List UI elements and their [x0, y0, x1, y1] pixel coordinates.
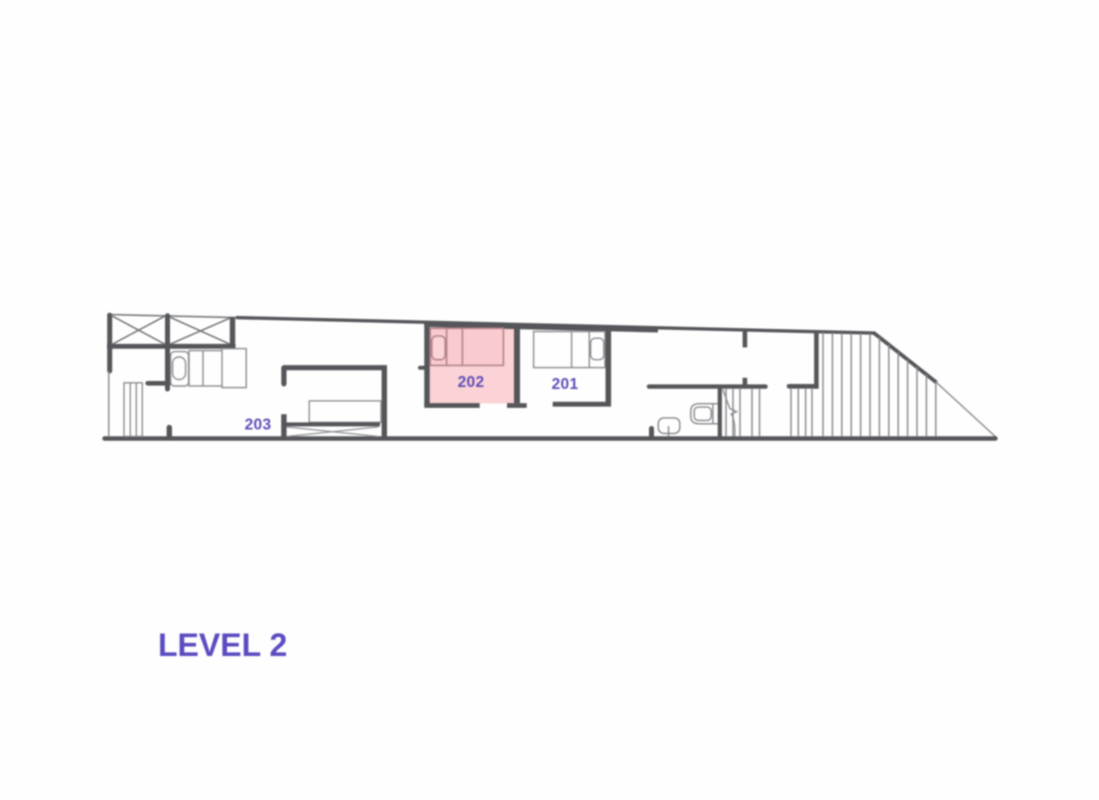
svg-text:LEVEL 2: LEVEL 2: [158, 627, 287, 663]
svg-text:201: 201: [552, 376, 579, 393]
svg-text:203: 203: [245, 417, 272, 434]
svg-text:202: 202: [458, 374, 485, 391]
